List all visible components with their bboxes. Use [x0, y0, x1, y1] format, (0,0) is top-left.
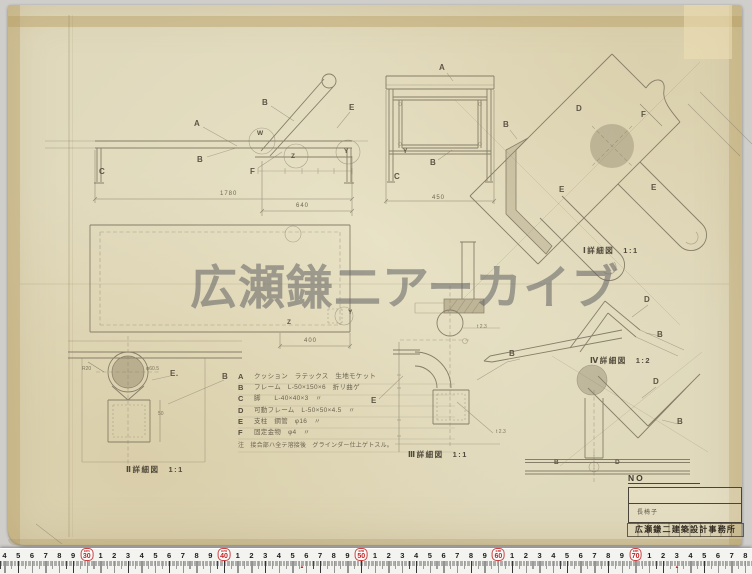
ruler-number: 6	[579, 552, 583, 560]
ruler-number: 2	[524, 552, 528, 560]
ruler-number: 4	[688, 552, 692, 560]
title-block: 長椅子	[628, 487, 742, 523]
detail-4-drawing	[484, 301, 708, 482]
detail-1-drawing	[455, 54, 752, 325]
ruler-number: 1	[373, 552, 377, 560]
ruler-number: 6	[30, 552, 34, 560]
ruler-number: 5	[565, 552, 569, 560]
scanned-drawing-page: ABEWZYBFC1780640AYBC450YZ400BDFEEⅠ詳細図 1:…	[0, 0, 752, 574]
ruler-number: 5	[291, 552, 295, 560]
ruler-number: 3	[263, 552, 267, 560]
ruler-number: 1	[236, 552, 240, 560]
front-elevation-drawing	[384, 73, 496, 204]
ruler-number: 7	[181, 552, 185, 560]
ruler-number: 4	[140, 552, 144, 560]
ruler-number: 8	[332, 552, 336, 560]
ruler-red-mark: ▲	[300, 564, 304, 569]
parts-list-row: Bフレーム L-50×150×6 折リ曲ゲ	[238, 382, 448, 393]
ruler-number: 1	[98, 552, 102, 560]
ruler-red-mark: ▲	[675, 564, 679, 569]
parts-list-note: 注 接合部ハ全テ溶接後 グラインダー仕上ゲトスル。	[238, 440, 448, 449]
ruler-number: 4	[2, 552, 6, 560]
ruler-number: 8	[57, 552, 61, 560]
ruler-number: 4	[277, 552, 281, 560]
ruler-number: 5	[428, 552, 432, 560]
ruler-number: 7	[455, 552, 459, 560]
parts-list-row: F固定金物 φ4 〃	[238, 427, 448, 438]
ruler-decade-number: cm70	[629, 548, 642, 561]
parts-list-row: Aクッション ラテックス 生地モケット	[238, 371, 448, 382]
ruler-number: 4	[551, 552, 555, 560]
title-block-upper-row	[629, 488, 741, 504]
ruler-number: 6	[716, 552, 720, 560]
ruler-number: 1	[647, 552, 651, 560]
drawing-title: 長椅子	[637, 507, 658, 516]
ruler-number: 1	[510, 552, 514, 560]
ruler-number: 3	[675, 552, 679, 560]
ruler-ticks	[0, 561, 752, 573]
ruler-number: 2	[387, 552, 391, 560]
ruler-number: 2	[249, 552, 253, 560]
measuring-tape: 456789cm30123456789cm40123456789cm501234…	[0, 548, 752, 574]
ruler-number: 4	[414, 552, 418, 560]
ruler-number: 3	[126, 552, 130, 560]
office-stamp: 広瀬鎌二建築設計事務所	[627, 523, 744, 537]
ruler-decade-number: cm50	[355, 548, 368, 561]
detail-2-drawing	[68, 336, 242, 468]
parts-list-row: E支柱 鋼管 φ16 〃	[238, 416, 448, 427]
ruler-number: 8	[469, 552, 473, 560]
ruler-number: 8	[743, 552, 747, 560]
parts-list-row: D可動フレーム L-50×50×4.5 〃	[238, 405, 448, 416]
ruler-number: 9	[345, 552, 349, 560]
paper-fold-line	[36, 524, 62, 544]
ruler-number: 6	[304, 552, 308, 560]
ruler-number: 5	[153, 552, 157, 560]
ruler-number: 9	[483, 552, 487, 560]
parts-list-row: C脚 L-40×40×3 〃	[238, 393, 448, 404]
ruler-number: 3	[400, 552, 404, 560]
ruler-number: 2	[661, 552, 665, 560]
parts-list: Aクッション ラテックス 生地モケットBフレーム L-50×150×6 折リ曲ゲ…	[238, 371, 448, 449]
ruler-number: 6	[441, 552, 445, 560]
ruler-number: 2	[112, 552, 116, 560]
ruler-number: 7	[592, 552, 596, 560]
ruler-number: 5	[702, 552, 706, 560]
ruler-number: 3	[537, 552, 541, 560]
ruler-number: 7	[44, 552, 48, 560]
ruler-number: 6	[167, 552, 171, 560]
ruler-number: 7	[730, 552, 734, 560]
ruler-number: 8	[606, 552, 610, 560]
side-elevation-drawing	[45, 74, 368, 216]
ruler-decade-number: cm30	[80, 548, 93, 561]
plan-view-drawing	[90, 225, 353, 349]
drawing-number-label: NO	[628, 473, 700, 484]
ruler-decade-number: cm40	[218, 548, 231, 561]
ruler-number: 9	[208, 552, 212, 560]
ruler-decade-number: cm60	[492, 548, 505, 561]
ruler-number: 7	[318, 552, 322, 560]
ruler-number: 5	[16, 552, 20, 560]
ruler-number: 9	[71, 552, 75, 560]
ruler-number: 8	[194, 552, 198, 560]
ruler-number: 9	[620, 552, 624, 560]
